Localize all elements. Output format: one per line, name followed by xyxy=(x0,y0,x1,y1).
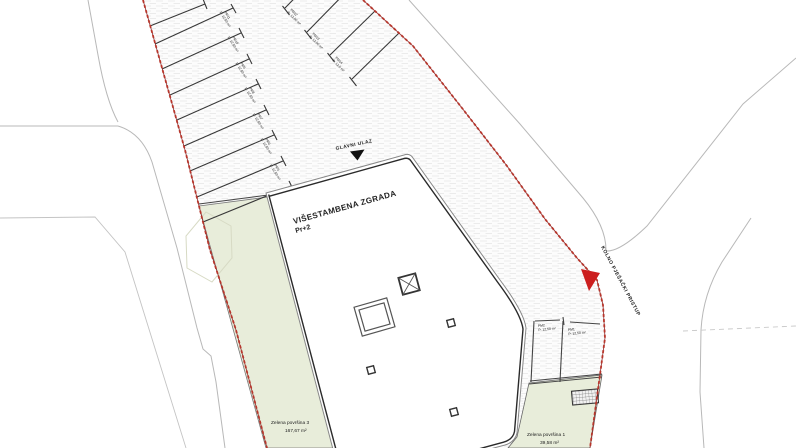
svg-text:Zelena površina 1: Zelena površina 1 xyxy=(527,432,565,438)
svg-text:Zelena površina 3: Zelena površina 3 xyxy=(271,420,309,426)
svg-text:39,58 m²: 39,58 m² xyxy=(540,440,559,446)
svg-text:167,67 m²: 167,67 m² xyxy=(285,428,307,434)
